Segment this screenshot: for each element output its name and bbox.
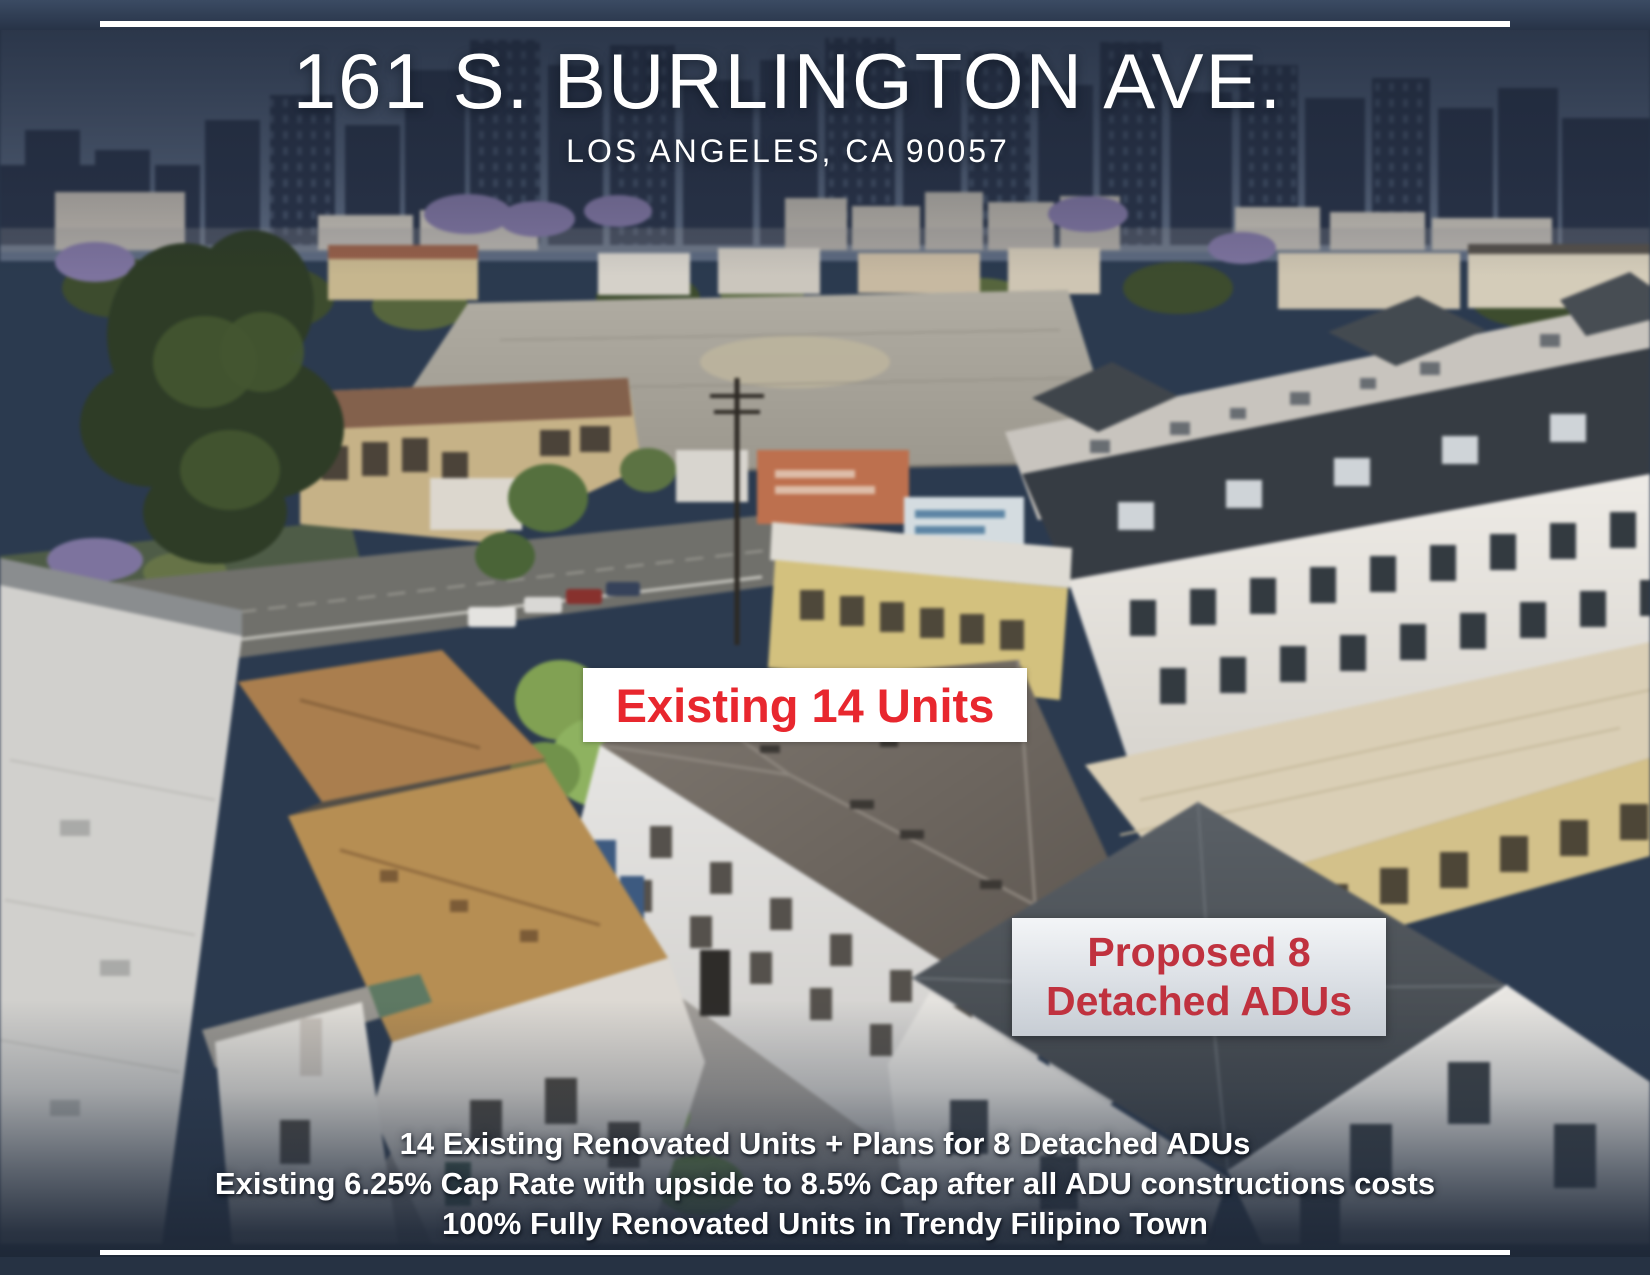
- tan-building-left: [300, 378, 642, 542]
- highlight-line-1: 14 Existing Renovated Units + Plans for …: [0, 1124, 1650, 1164]
- proposed-adus-line1: Proposed 8: [1087, 928, 1310, 977]
- highlight-line-3: 100% Fully Renovated Units in Trendy Fil…: [0, 1204, 1650, 1244]
- highlight-line-2: Existing 6.25% Cap Rate with upside to 8…: [0, 1164, 1650, 1204]
- bottom-border-bar: [0, 1257, 1650, 1275]
- bottom-divider-line: [100, 1250, 1510, 1255]
- property-title: 161 S. BURLINGTON AVE.: [293, 40, 1283, 122]
- top-divider-line: [100, 21, 1510, 27]
- property-subtitle: LOS ANGELES, CA 90057: [293, 134, 1283, 168]
- existing-units-label: Existing 14 Units: [583, 668, 1027, 742]
- property-flyer: 161 S. BURLINGTON AVE. LOS ANGELES, CA 9…: [0, 0, 1650, 1275]
- proposed-adus-label: Proposed 8 Detached ADUs: [1012, 918, 1386, 1036]
- property-header: 161 S. BURLINGTON AVE. LOS ANGELES, CA 9…: [293, 40, 1283, 168]
- investment-highlights: 14 Existing Renovated Units + Plans for …: [0, 1124, 1650, 1244]
- proposed-adus-line2: Detached ADUs: [1046, 977, 1352, 1026]
